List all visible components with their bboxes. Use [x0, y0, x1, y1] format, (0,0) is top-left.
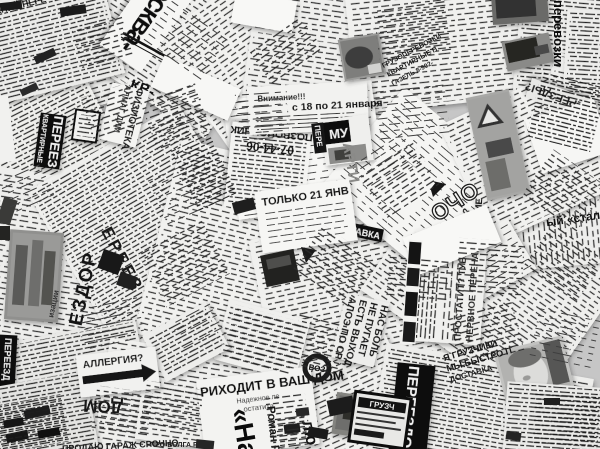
svg-text:МУ: МУ: [328, 125, 350, 142]
svg-text:перевозки: перевозки: [551, 0, 566, 67]
